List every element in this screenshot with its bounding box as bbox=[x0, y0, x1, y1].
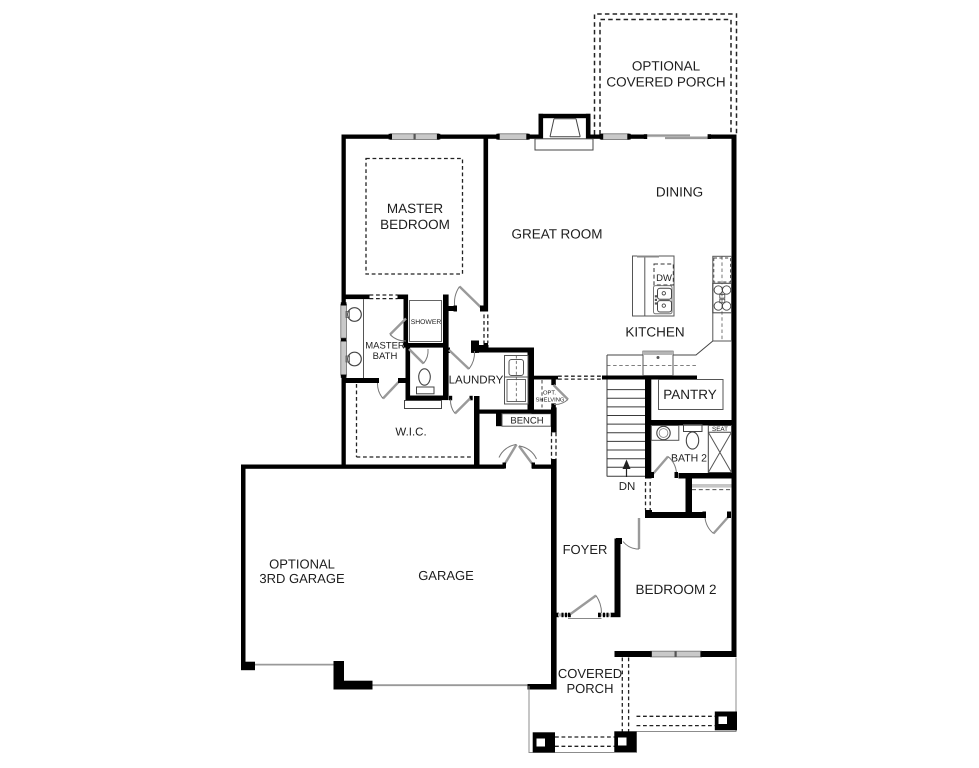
svg-text:OPTIONAL: OPTIONAL bbox=[632, 59, 701, 74]
svg-text:COVERED PORCH: COVERED PORCH bbox=[606, 75, 725, 90]
svg-text:COVERED: COVERED bbox=[558, 666, 622, 681]
svg-text:DW: DW bbox=[656, 273, 672, 284]
svg-text:OPT.: OPT. bbox=[543, 390, 556, 397]
svg-text:BENCH: BENCH bbox=[510, 416, 543, 427]
svg-text:3RD GARAGE: 3RD GARAGE bbox=[259, 571, 345, 586]
svg-text:DINING: DINING bbox=[656, 185, 703, 200]
svg-text:PANTRY: PANTRY bbox=[663, 387, 717, 402]
svg-text:BEDROOM: BEDROOM bbox=[380, 217, 450, 232]
svg-text:SHOWER: SHOWER bbox=[411, 319, 442, 326]
svg-text:PORCH: PORCH bbox=[567, 681, 614, 696]
svg-text:GREAT ROOM: GREAT ROOM bbox=[511, 227, 602, 242]
svg-text:KITCHEN: KITCHEN bbox=[625, 325, 684, 340]
svg-text:BATH 2: BATH 2 bbox=[671, 453, 707, 465]
svg-text:OPTIONAL: OPTIONAL bbox=[269, 557, 335, 572]
svg-text:SEAT: SEAT bbox=[712, 426, 728, 433]
svg-text:BEDROOM 2: BEDROOM 2 bbox=[635, 582, 716, 597]
svg-text:GARAGE: GARAGE bbox=[418, 568, 474, 583]
svg-text:LAUNDRY: LAUNDRY bbox=[449, 375, 504, 387]
svg-text:SHELVING: SHELVING bbox=[536, 396, 565, 403]
svg-text:BATH: BATH bbox=[373, 351, 398, 362]
svg-text:MASTER: MASTER bbox=[365, 341, 405, 352]
svg-text:MASTER: MASTER bbox=[387, 201, 444, 216]
svg-text:DN: DN bbox=[619, 481, 636, 493]
svg-text:W.I.C.: W.I.C. bbox=[395, 427, 426, 439]
svg-text:FOYER: FOYER bbox=[563, 542, 608, 557]
